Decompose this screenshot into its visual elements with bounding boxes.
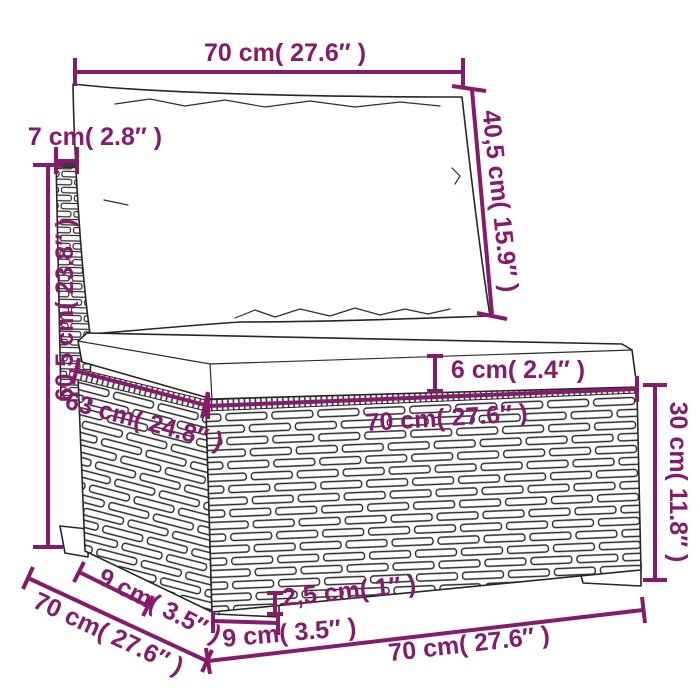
dim-label-backrest-thickness: 7 cm( 2.8″ ) — [28, 123, 162, 151]
dim-base-height: 30 cm( 11.8″ ) — [643, 385, 692, 580]
dimension-diagram: 70 cm( 27.6″ ) 7 cm( 2.8″ ) 40,5 cm( 15.… — [0, 0, 700, 700]
dim-label-base-height: 30 cm( 11.8″ ) — [664, 402, 692, 563]
back-cushion — [73, 84, 490, 334]
dim-back-cushion-width: 70 cm( 27.6″ ) — [75, 39, 463, 86]
sofa-illustration — [56, 84, 641, 617]
dim-label-back-cushion-width: 70 cm( 27.6″ ) — [204, 39, 366, 67]
back-cushion-body — [73, 84, 490, 334]
dim-total-height: 60,5 cm( 23.8″ ) — [33, 165, 79, 547]
sofa-dimension-drawing: 70 cm( 27.6″ ) 7 cm( 2.8″ ) 40,5 cm( 15.… — [0, 0, 700, 700]
dim-label-base-width: 70 cm( 27.6″ ) — [387, 621, 551, 667]
dim-label-seat-cushion-thickness: 6 cm( 2.4″ ) — [451, 356, 585, 384]
